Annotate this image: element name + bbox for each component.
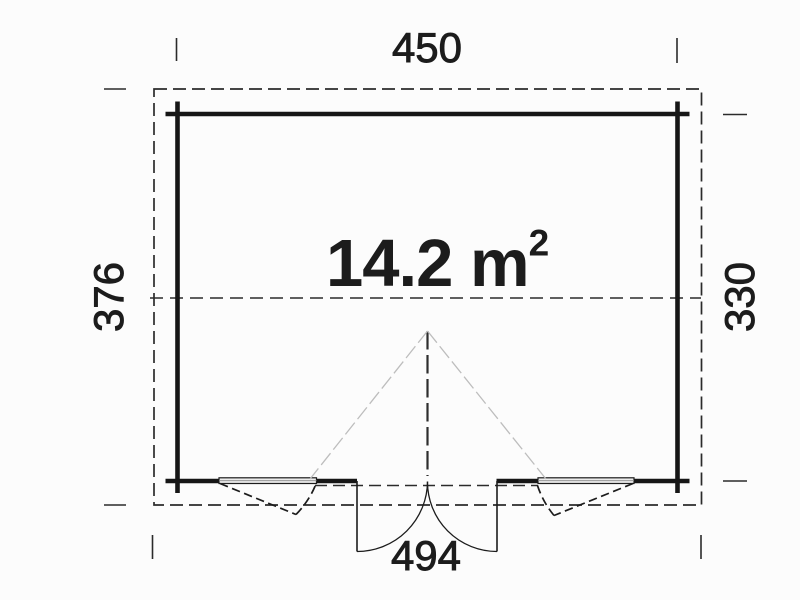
svg-text:376: 376 — [85, 262, 132, 332]
svg-text:14.2 m2: 14.2 m2 — [326, 223, 549, 302]
svg-text:494: 494 — [391, 532, 461, 579]
svg-text:450: 450 — [392, 24, 462, 71]
svg-text:330: 330 — [716, 262, 763, 332]
